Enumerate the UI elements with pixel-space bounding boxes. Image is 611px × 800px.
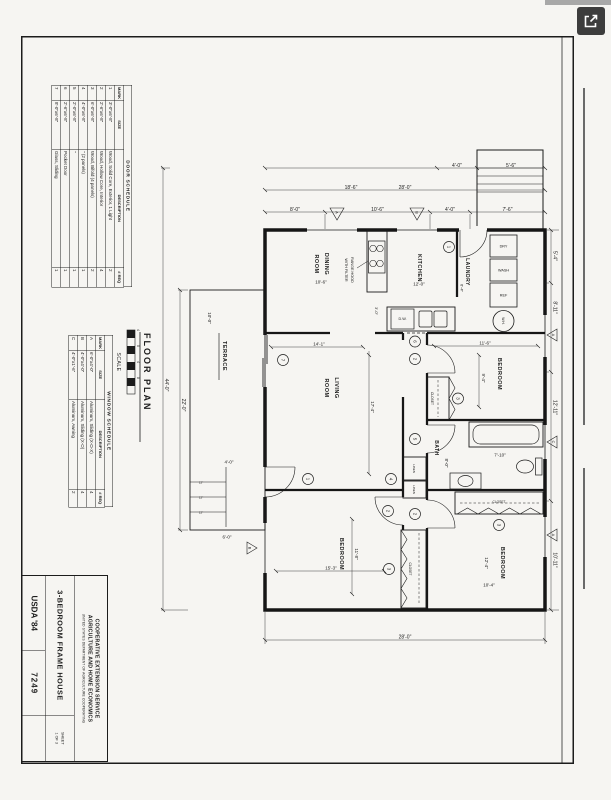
dim: 17'-4" [370, 401, 375, 413]
doors [265, 230, 487, 528]
cell: 4 [79, 85, 88, 100]
door-mark-4: 4 [389, 478, 394, 481]
dim: 12" [199, 481, 203, 485]
sheet-value: 1 OF 3 [54, 733, 60, 744]
org-subline: UNITED STATES DEPARTMENT OF AGRICULTURE … [82, 614, 86, 724]
scale-tick: 8 [136, 377, 140, 379]
dim: 10'-11" [552, 552, 558, 567]
dim: 4'-0" [452, 163, 462, 169]
washer-label: WASH [498, 269, 509, 273]
sheet-fold-mark [583, 88, 585, 425]
table-row: 22'-6"x6'-8"Wood, Hollow Core, Interior4 [97, 85, 106, 287]
window-mark-b: B [415, 211, 420, 214]
living-label: LIVING [333, 377, 339, 398]
door-markers: 1 1 7 6 2 5 2 2 3 3 3 4 [278, 242, 505, 575]
dim: 10'-0" [207, 312, 212, 324]
window-schedule-title: WINDOW SCHEDULE [105, 335, 113, 507]
plan-title: FLOOR PLAN [142, 333, 152, 412]
cell: B [78, 335, 87, 350]
range-hood-label: RANGE HOOD [350, 257, 354, 283]
dryer-label: DRY [500, 245, 508, 249]
sheet-number: SHEET 1 OF 3 [46, 715, 75, 761]
cell: Wood, Bifold (4 panels) [88, 149, 97, 267]
dim: 10'-6" [315, 280, 327, 285]
linen-label: LINEN [412, 485, 416, 494]
col-header: MARK [96, 335, 105, 350]
window-markers: A C A B A B [247, 208, 557, 554]
dim: 10'-6" [371, 207, 384, 213]
bedroom-label: BEDROOM [496, 358, 502, 390]
cell: 4'-0"x6'-8" [79, 100, 88, 149]
closets [401, 377, 543, 608]
door-mark-2: 2 [386, 510, 391, 513]
scale-tick: 4 [136, 361, 140, 363]
cell: C [69, 335, 78, 350]
cell: 4'-0"x1'-6" [69, 350, 78, 399]
cell: 5 [70, 85, 79, 100]
table-row: 78'-0"x6'-8"Glass, Sliding1 [52, 85, 61, 287]
door-schedule-title: DOOR SCHEDULE [124, 85, 132, 287]
door-mark-1: 1 [306, 478, 311, 481]
toolbar-edge [545, 0, 611, 5]
dim: 9'-4" [481, 374, 486, 383]
drawing-title: 3-BEDROOM FRAME HOUSE [46, 576, 75, 715]
cell: 3 [88, 85, 97, 100]
dimension-ticks [161, 166, 553, 642]
door-schedule: DOOR SCHEDULE MARK SIZE DESCRIPTION # RE… [52, 85, 133, 287]
cell: 2'-0"x6'-8" [70, 100, 79, 149]
closet-label: CLOSET [408, 562, 412, 575]
door-mark-1: 1 [447, 246, 452, 249]
title-block-org: COOPERATIVE EXTENSION SERVICE AGRICULTUR… [74, 576, 107, 761]
dim: 18'-6" [345, 185, 358, 191]
dim: 10'-4" [483, 583, 495, 588]
refrigerator-label: REF [500, 294, 508, 298]
cell: 4 [78, 489, 87, 507]
drawing-number: 7249 [23, 651, 46, 716]
scale-tick: 0 [136, 345, 140, 347]
cell: Aluminum, Awning [69, 399, 78, 489]
laundry-labels: DRY WASH REF W.H. [498, 245, 509, 325]
window-mark-b: B [248, 547, 253, 550]
closet-label: CLOSET [492, 500, 505, 504]
cell: Aluminum, Sliding (X-O) [78, 399, 87, 489]
cell: Pocket Door [61, 149, 70, 267]
cell: 7 [52, 85, 61, 100]
dim: 11'-6" [479, 341, 491, 346]
cell: 4 [87, 489, 96, 507]
bath-label: BATH [433, 440, 439, 456]
water-heater-label: W.H. [501, 317, 505, 325]
linen-label: LINEN [412, 464, 416, 473]
window-schedule: WINDOW SCHEDULE MARK SIZE DESCRIPTION # … [69, 335, 114, 507]
scale-tick: 4 [136, 329, 140, 331]
dim: 28'-0" [399, 185, 412, 191]
window-schedule-header: MARK SIZE DESCRIPTION # REQ [96, 335, 105, 507]
cell: 2 [97, 85, 106, 100]
window-mark-a: A [551, 334, 556, 337]
col-header: # REQ [115, 267, 124, 287]
dim: 12'-0" [413, 282, 425, 287]
dim: 6'-0" [223, 535, 232, 540]
cell: Aluminum, Sliding (X-O-X) [87, 399, 96, 489]
cell: 4 [97, 267, 106, 287]
dim: 6'-4" [460, 284, 465, 293]
terrace-label: TERRACE [221, 341, 227, 371]
dim: 44'-0" [163, 379, 169, 392]
cell: Wood, Solid Core, Exterior, 1 Light [106, 149, 115, 267]
kitchen-fixtures [357, 230, 455, 331]
dim: 28'-0" [399, 635, 412, 641]
door-mark-3: 3 [497, 524, 502, 527]
cell: Wood, Hollow Core, Interior [97, 149, 106, 267]
door-schedule-header: MARK SIZE DESCRIPTION # REQ [115, 85, 124, 287]
dim: 3'-0" [374, 307, 379, 316]
agency-label: USDA '84 [23, 576, 46, 651]
window-mark-a: A [551, 534, 556, 537]
scanned-sheet: CLOSET CLOSET CLOSET LINEN LINEN D.W. RA… [20, 35, 575, 765]
window-mark-a: A [335, 211, 340, 214]
cell: Glass, Sliding [52, 149, 61, 267]
col-header: SIZE [115, 100, 124, 149]
org-line: AGRICULTURE AND HOME ECONOMICS [87, 615, 94, 723]
scale-label: SCALE [115, 353, 121, 372]
cell: 1 [52, 267, 61, 287]
cell: 2 [69, 489, 78, 507]
door-mark-2: 2 [413, 358, 418, 361]
door-mark-7: 7 [281, 359, 286, 362]
cell: " [70, 149, 79, 267]
col-header: SIZE [96, 350, 105, 399]
sheet-fold-mark [583, 468, 585, 589]
table-row: B4'-0"x4'-0"Aluminum, Sliding (X-O)4 [78, 335, 87, 507]
table-row: C4'-0"x1'-6"Aluminum, Awning2 [69, 335, 78, 507]
dim: 8'-11" [552, 301, 558, 314]
range-hood-label: WITH FILTER [344, 258, 348, 282]
cell: A [87, 335, 96, 350]
dim: 14'-1" [313, 342, 325, 347]
cell: 4'-0"x4'-0" [78, 350, 87, 399]
dim: 4'-0" [445, 207, 455, 213]
dining-label: DINING [323, 253, 329, 275]
cell: " (2 panels) [79, 149, 88, 267]
dim: 7'-10" [494, 453, 506, 458]
table-row: 62'-6"x6'-8"Pocket Door1 [61, 85, 70, 287]
cell: 6'-0"x4'-0" [87, 350, 96, 399]
sheet-label: SHEET [60, 732, 66, 745]
col-header: MARK [115, 85, 124, 100]
title-block: COOPERATIVE EXTENSION SERVICE AGRICULTUR… [22, 575, 109, 762]
table-row: 36'-0"x6'-8"Wood, Bifold (4 panels)2 [88, 85, 97, 287]
living-label: ROOM [323, 378, 329, 397]
dim: 5'-6" [506, 163, 516, 169]
door-mark-5: 5 [413, 438, 418, 441]
cell: 8'-0"x6'-8" [52, 100, 61, 149]
dim: 7'-6" [503, 207, 513, 213]
cell: 2 [106, 267, 115, 287]
cell: 6'-0"x6'-8" [88, 100, 97, 149]
kitchen-label: KITCHEN [416, 254, 422, 282]
table-row: A6'-0"x4'-0"Aluminum, Sliding (X-O-X)4 [87, 335, 96, 507]
dim: 8'-0" [290, 207, 300, 213]
table-row: 52'-0"x6'-8""1 [70, 85, 79, 287]
door-mark-2: 2 [413, 513, 418, 516]
open-in-new-button[interactable] [577, 7, 605, 35]
org-line: COOPERATIVE EXTENSION SERVICE [93, 619, 100, 719]
dim: 12" [199, 496, 203, 500]
col-header: # REQ [96, 489, 105, 507]
dim: 4'-0" [225, 460, 234, 465]
window-mark-c: C [551, 441, 556, 444]
dim: 12" [199, 511, 203, 515]
cell: 2'-6"x6'-8" [61, 100, 70, 149]
col-header: DESCRIPTION [115, 149, 124, 267]
dining-label: ROOM [313, 254, 319, 273]
table-row: 13'-0"x6'-8"Wood, Solid Core, Exterior, … [106, 85, 115, 287]
dim: 22'-0" [180, 399, 186, 412]
exterior-openings [261, 226, 549, 573]
door-mark-6: 6 [413, 340, 418, 343]
cell: 1 [70, 267, 79, 287]
dim: 12'-11" [552, 400, 558, 415]
cell: 1 [79, 267, 88, 287]
laundry-label: LAUNDRY [464, 258, 470, 286]
cell: 3'-0"x6'-8" [106, 100, 115, 149]
document-viewer: { "viewer": { "open_button_icon": "open-… [0, 0, 611, 800]
door-mark-3: 3 [387, 568, 392, 571]
dim: 12'-4" [484, 557, 489, 569]
dim: 11'-8" [354, 548, 359, 560]
bedroom-label: BEDROOM [499, 547, 505, 579]
cell: 6 [61, 85, 70, 100]
col-header: DESCRIPTION [96, 399, 105, 489]
dishwasher-label: D.W. [398, 317, 406, 321]
terrace [190, 290, 265, 530]
cell: 1 [106, 85, 115, 100]
cell: 1 [61, 267, 70, 287]
bedroom-label: BEDROOM [338, 538, 344, 570]
table-row: 44'-0"x6'-8"" (2 panels)1 [79, 85, 88, 287]
cell: 2'-6"x6'-8" [97, 100, 106, 149]
closet-label: CLOSET [430, 392, 434, 405]
dim: 15'-3" [325, 566, 337, 571]
door-mark-3: 3 [456, 397, 461, 400]
dim: 8'-0" [444, 459, 449, 468]
open-in-new-icon [582, 12, 600, 30]
title-block-empty-cell [23, 716, 46, 761]
cell: 2 [88, 267, 97, 287]
floor-plan-title: FLOOR PLAN 4 0 4 8 SCALE [115, 329, 152, 442]
dim: 5'-4" [552, 251, 558, 261]
